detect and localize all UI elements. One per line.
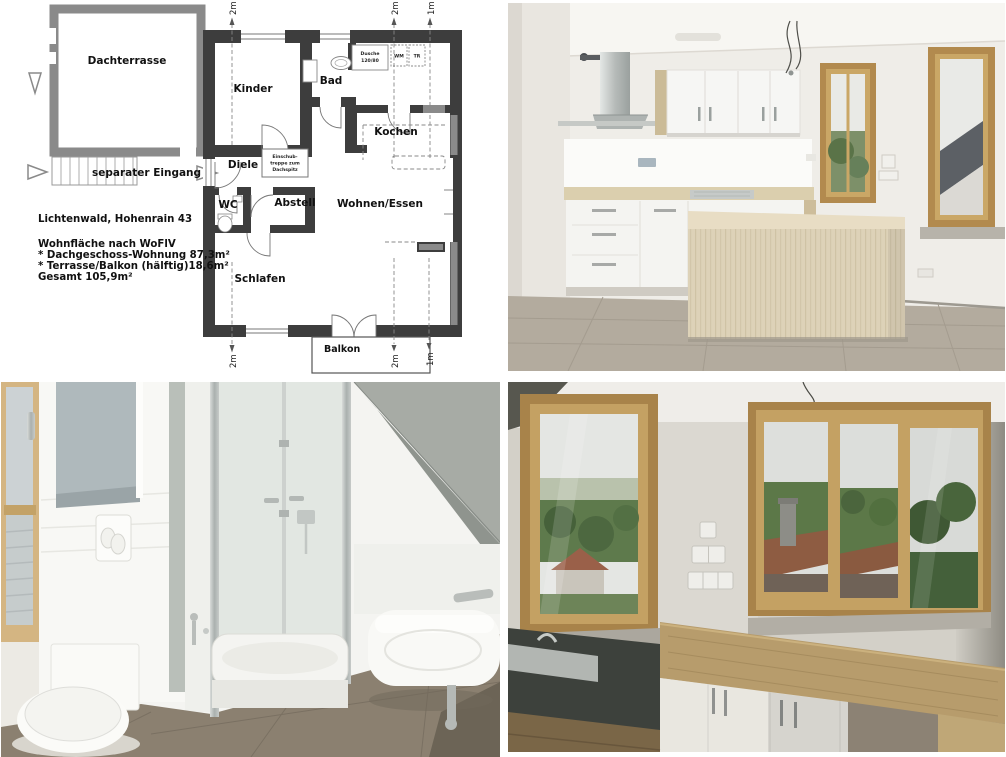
window-right — [928, 47, 995, 227]
dark-kitchen-corner — [508, 628, 660, 752]
hinge — [279, 440, 289, 447]
drain-trap — [447, 685, 456, 721]
address-text: Lichtenwald, Hohenrain 43 — [38, 214, 192, 225]
bathroom-label: Bad — [320, 75, 343, 87]
dim-bottom-mid: 2m — [391, 354, 401, 368]
direction-arrow-icon — [28, 165, 47, 179]
hinge — [279, 510, 289, 517]
attic-stairs-label-1: Einschub- — [272, 154, 297, 160]
area-line1-text: * Dachgeschoss-Wohnung 87,3m² — [38, 250, 230, 261]
kitchen-counter-dashed — [363, 125, 447, 242]
bathroom-photo — [1, 382, 500, 757]
upper-cabinets — [655, 70, 800, 137]
area-heading-text: Wohnfläche nach WoFlV — [38, 239, 176, 250]
real-estate-expose-collage: Dachterrasse separater Eingang — [0, 0, 1006, 757]
separate-entrance-label: separater Eingang — [92, 167, 201, 179]
tall-window — [520, 394, 658, 634]
direction-arrow-icon — [29, 73, 41, 93]
power-socket — [638, 158, 656, 167]
wall-shelf — [558, 121, 660, 126]
band-pane-2 — [838, 424, 898, 598]
band-pane-3 — [906, 428, 978, 608]
window-band — [748, 402, 991, 616]
living-dining-label: Wohnen/Essen — [337, 198, 423, 210]
washing-machine-box: WM — [391, 45, 407, 66]
shower-door-handle — [289, 496, 304, 501]
shower-box: Dusche 120/80 — [352, 45, 388, 70]
shower-enclosure — [210, 382, 351, 717]
window-handle — [27, 412, 35, 440]
area-line2-text: * Terrasse/Balkon (hälftig)18,6m² — [38, 261, 229, 272]
shower-door-handle — [264, 498, 279, 503]
socket-row — [688, 572, 733, 589]
shower-mixer — [297, 510, 315, 524]
backsplash — [564, 139, 812, 187]
sink — [690, 190, 754, 199]
window-view-photo-art — [508, 382, 1005, 752]
wc-label: WC — [218, 199, 238, 211]
dryer-box: TR — [409, 45, 425, 66]
dryer-label: TR — [414, 54, 421, 60]
washing-machine-label: WM — [394, 54, 404, 60]
shower-label-2: 120/80 — [361, 58, 379, 64]
property-info-block: Lichtenwald, Hohenrain 43 Wohnfläche nac… — [38, 214, 230, 283]
light-switch — [700, 522, 716, 538]
dim-bottom-left: 2m — [229, 354, 239, 368]
window-view-photo — [508, 382, 1005, 752]
window-sill — [920, 227, 1005, 239]
dim-bottom-right: 1m — [426, 352, 436, 366]
ceiling-vent — [675, 33, 721, 41]
storage-label: Abstell — [274, 197, 315, 209]
dim-top-right: 1m — [427, 1, 437, 15]
power-socket — [918, 269, 933, 277]
power-socket — [806, 154, 816, 161]
dim-top-mid: 2m — [391, 1, 401, 15]
light-switch — [882, 155, 895, 168]
floor-plan-drawing: Dachterrasse separater Eingang — [0, 0, 506, 381]
kitchen-photo-art — [508, 3, 1005, 371]
shower-label-1: Dusche — [361, 51, 380, 57]
attic-stairs-label-3: Dachspitz — [272, 167, 298, 173]
balcony-label: Balkon — [324, 344, 360, 355]
frosted-panel — [56, 382, 140, 494]
balcony: Balkon — [312, 337, 430, 373]
window-left — [820, 63, 876, 203]
dim-top-left: 2m — [229, 1, 239, 15]
hallway-label: Diele — [228, 159, 258, 171]
knee-wall — [354, 544, 500, 614]
light-switch — [879, 171, 898, 180]
kitchen-label: Kochen — [374, 126, 417, 138]
kitchen-photo — [508, 3, 1005, 371]
bedroom-label: Schlafen — [234, 273, 285, 285]
attic-stairs-label-2: treppe zum — [270, 161, 300, 167]
flush-plate — [96, 515, 131, 561]
area-total-text: Gesamt 105,9m² — [38, 272, 133, 283]
chimney-view — [780, 502, 796, 546]
attic-stairs-box: Einschub- treppe zum Dachspitz — [262, 149, 308, 177]
floor-plan-panel: Dachterrasse separater Eingang — [0, 0, 506, 381]
kids-room-label: Kinder — [233, 83, 273, 95]
roof-terrace-label: Dachterrasse — [88, 55, 167, 67]
band-pane-1 — [764, 422, 828, 592]
roof-terrace: Dachterrasse — [46, 9, 201, 157]
kitchen-island — [688, 211, 908, 342]
bathroom-photo-art — [1, 382, 500, 757]
